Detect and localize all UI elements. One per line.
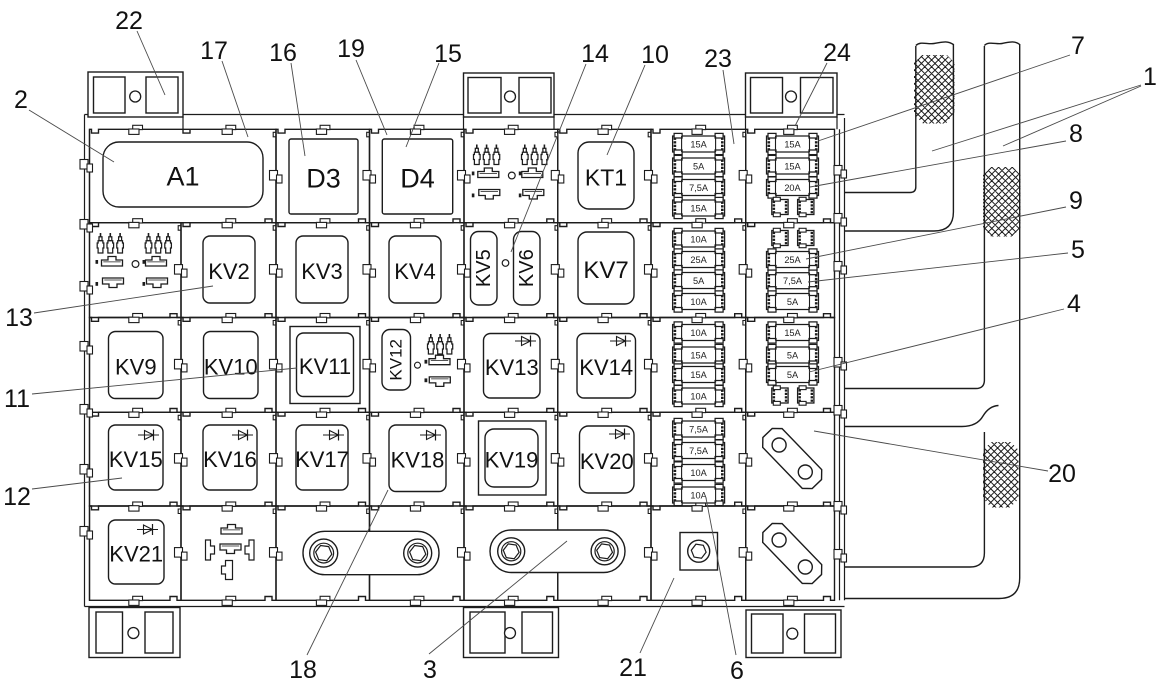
svg-text:KV17: KV17 bbox=[295, 447, 349, 472]
svg-text:10A: 10A bbox=[690, 468, 707, 478]
svg-text:KV16: KV16 bbox=[203, 447, 257, 472]
svg-text:5: 5 bbox=[1071, 236, 1085, 264]
svg-text:15A: 15A bbox=[784, 328, 801, 338]
svg-text:19: 19 bbox=[337, 35, 365, 63]
svg-text:20: 20 bbox=[1048, 460, 1076, 488]
svg-text:5A: 5A bbox=[787, 297, 799, 307]
svg-text:1: 1 bbox=[1143, 63, 1157, 91]
svg-text:15A: 15A bbox=[690, 350, 707, 360]
svg-text:KV6: KV6 bbox=[516, 249, 538, 287]
svg-text:3: 3 bbox=[423, 656, 437, 682]
svg-text:KV2: KV2 bbox=[208, 259, 250, 284]
svg-text:10: 10 bbox=[641, 41, 669, 69]
svg-text:D4: D4 bbox=[400, 164, 435, 194]
svg-text:7,5A: 7,5A bbox=[689, 183, 709, 193]
svg-text:6: 6 bbox=[730, 657, 744, 682]
svg-text:7,5A: 7,5A bbox=[689, 446, 709, 456]
svg-text:14: 14 bbox=[581, 40, 609, 68]
svg-text:7,5A: 7,5A bbox=[783, 276, 803, 286]
svg-text:12: 12 bbox=[3, 483, 31, 511]
svg-text:15A: 15A bbox=[690, 203, 707, 213]
svg-text:15A: 15A bbox=[784, 161, 801, 171]
svg-text:20A: 20A bbox=[784, 183, 801, 193]
svg-text:10A: 10A bbox=[690, 490, 707, 500]
svg-text:15A: 15A bbox=[690, 139, 707, 149]
svg-text:KV5: KV5 bbox=[473, 249, 495, 287]
svg-text:KV12: KV12 bbox=[387, 339, 406, 381]
svg-text:15A: 15A bbox=[784, 139, 801, 149]
svg-text:KV3: KV3 bbox=[301, 259, 343, 284]
svg-text:5A: 5A bbox=[787, 370, 799, 380]
svg-text:KT1: KT1 bbox=[585, 164, 627, 190]
svg-text:7: 7 bbox=[1071, 32, 1085, 60]
svg-text:17: 17 bbox=[200, 37, 228, 65]
svg-text:KV9: KV9 bbox=[115, 354, 157, 379]
svg-text:A1: A1 bbox=[166, 162, 199, 192]
svg-text:D3: D3 bbox=[306, 164, 341, 194]
svg-text:11: 11 bbox=[4, 385, 30, 413]
svg-text:KV11: KV11 bbox=[299, 354, 351, 379]
svg-text:KV7: KV7 bbox=[583, 257, 628, 284]
svg-text:22: 22 bbox=[115, 7, 143, 35]
svg-text:9: 9 bbox=[1069, 187, 1083, 215]
svg-text:10A: 10A bbox=[690, 391, 707, 401]
svg-text:5A: 5A bbox=[693, 276, 705, 286]
svg-text:2: 2 bbox=[14, 86, 28, 114]
svg-text:KV10: KV10 bbox=[204, 354, 258, 379]
svg-text:10A: 10A bbox=[690, 297, 707, 307]
svg-text:10A: 10A bbox=[690, 234, 707, 244]
svg-text:KV4: KV4 bbox=[394, 259, 436, 284]
svg-text:4: 4 bbox=[1067, 290, 1081, 318]
svg-text:KV13: KV13 bbox=[485, 355, 539, 380]
svg-text:16: 16 bbox=[269, 39, 297, 67]
svg-text:5A: 5A bbox=[693, 161, 705, 171]
svg-text:5A: 5A bbox=[787, 350, 799, 360]
svg-text:23: 23 bbox=[704, 45, 732, 73]
svg-text:KV15: KV15 bbox=[109, 447, 163, 472]
svg-text:7,5A: 7,5A bbox=[689, 424, 709, 434]
svg-text:18: 18 bbox=[289, 656, 317, 682]
svg-text:25A: 25A bbox=[690, 255, 707, 265]
svg-text:KV20: KV20 bbox=[580, 449, 634, 474]
svg-text:21: 21 bbox=[619, 654, 647, 682]
svg-text:KV18: KV18 bbox=[391, 448, 445, 473]
svg-text:24: 24 bbox=[823, 39, 851, 67]
svg-text:KV19: KV19 bbox=[485, 447, 539, 472]
svg-text:13: 13 bbox=[5, 304, 33, 332]
svg-text:KV21: KV21 bbox=[109, 541, 163, 566]
svg-text:KV14: KV14 bbox=[579, 355, 633, 380]
svg-text:10A: 10A bbox=[690, 328, 707, 338]
svg-text:25A: 25A bbox=[784, 255, 801, 265]
svg-text:15A: 15A bbox=[690, 370, 707, 380]
svg-text:15: 15 bbox=[434, 40, 462, 68]
svg-text:8: 8 bbox=[1069, 120, 1083, 148]
